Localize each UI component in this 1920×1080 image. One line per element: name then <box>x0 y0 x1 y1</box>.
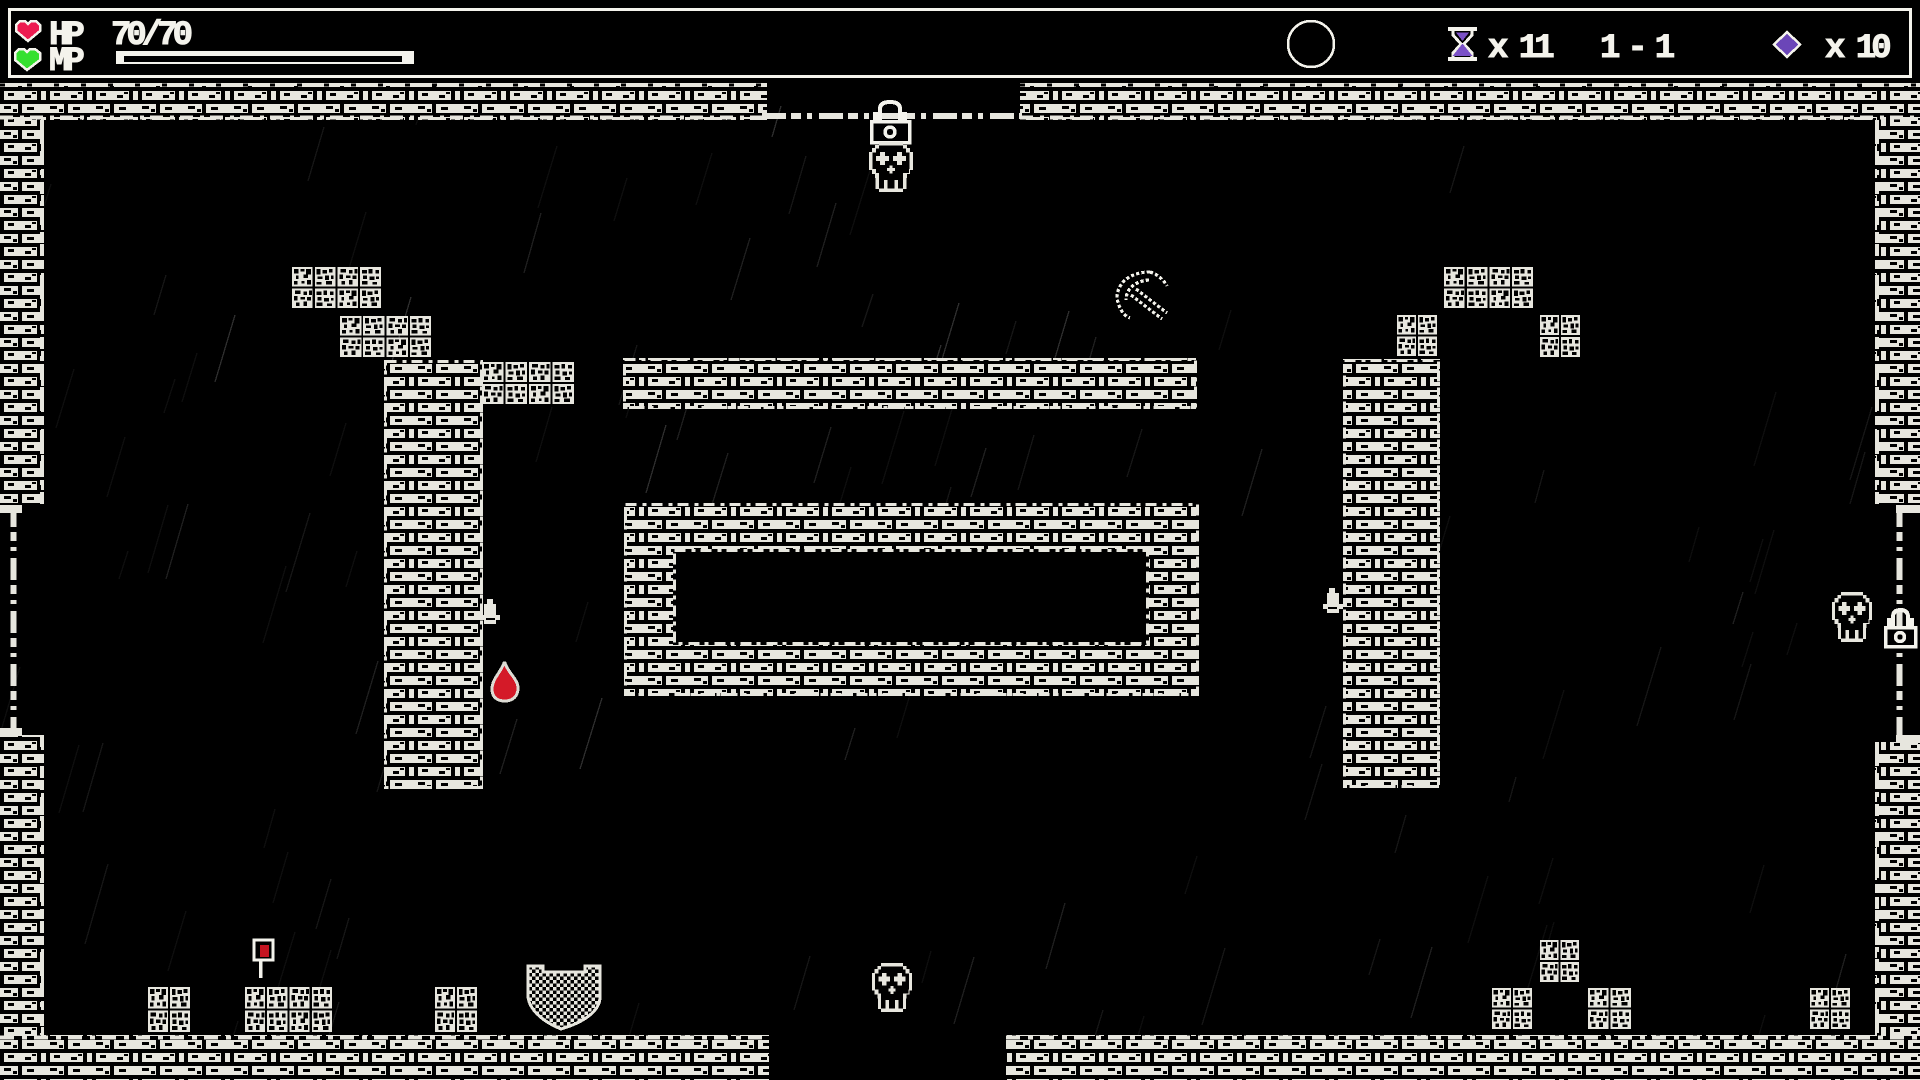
svg-text:x 10: x 10 <box>1825 30 1890 68</box>
svg-text:x 11: x 11 <box>1488 30 1553 68</box>
svg-text:MP: MP <box>49 43 83 81</box>
svg-text:1-1: 1-1 <box>1600 30 1682 68</box>
svg-text:70/70: 70/70 <box>111 17 192 55</box>
